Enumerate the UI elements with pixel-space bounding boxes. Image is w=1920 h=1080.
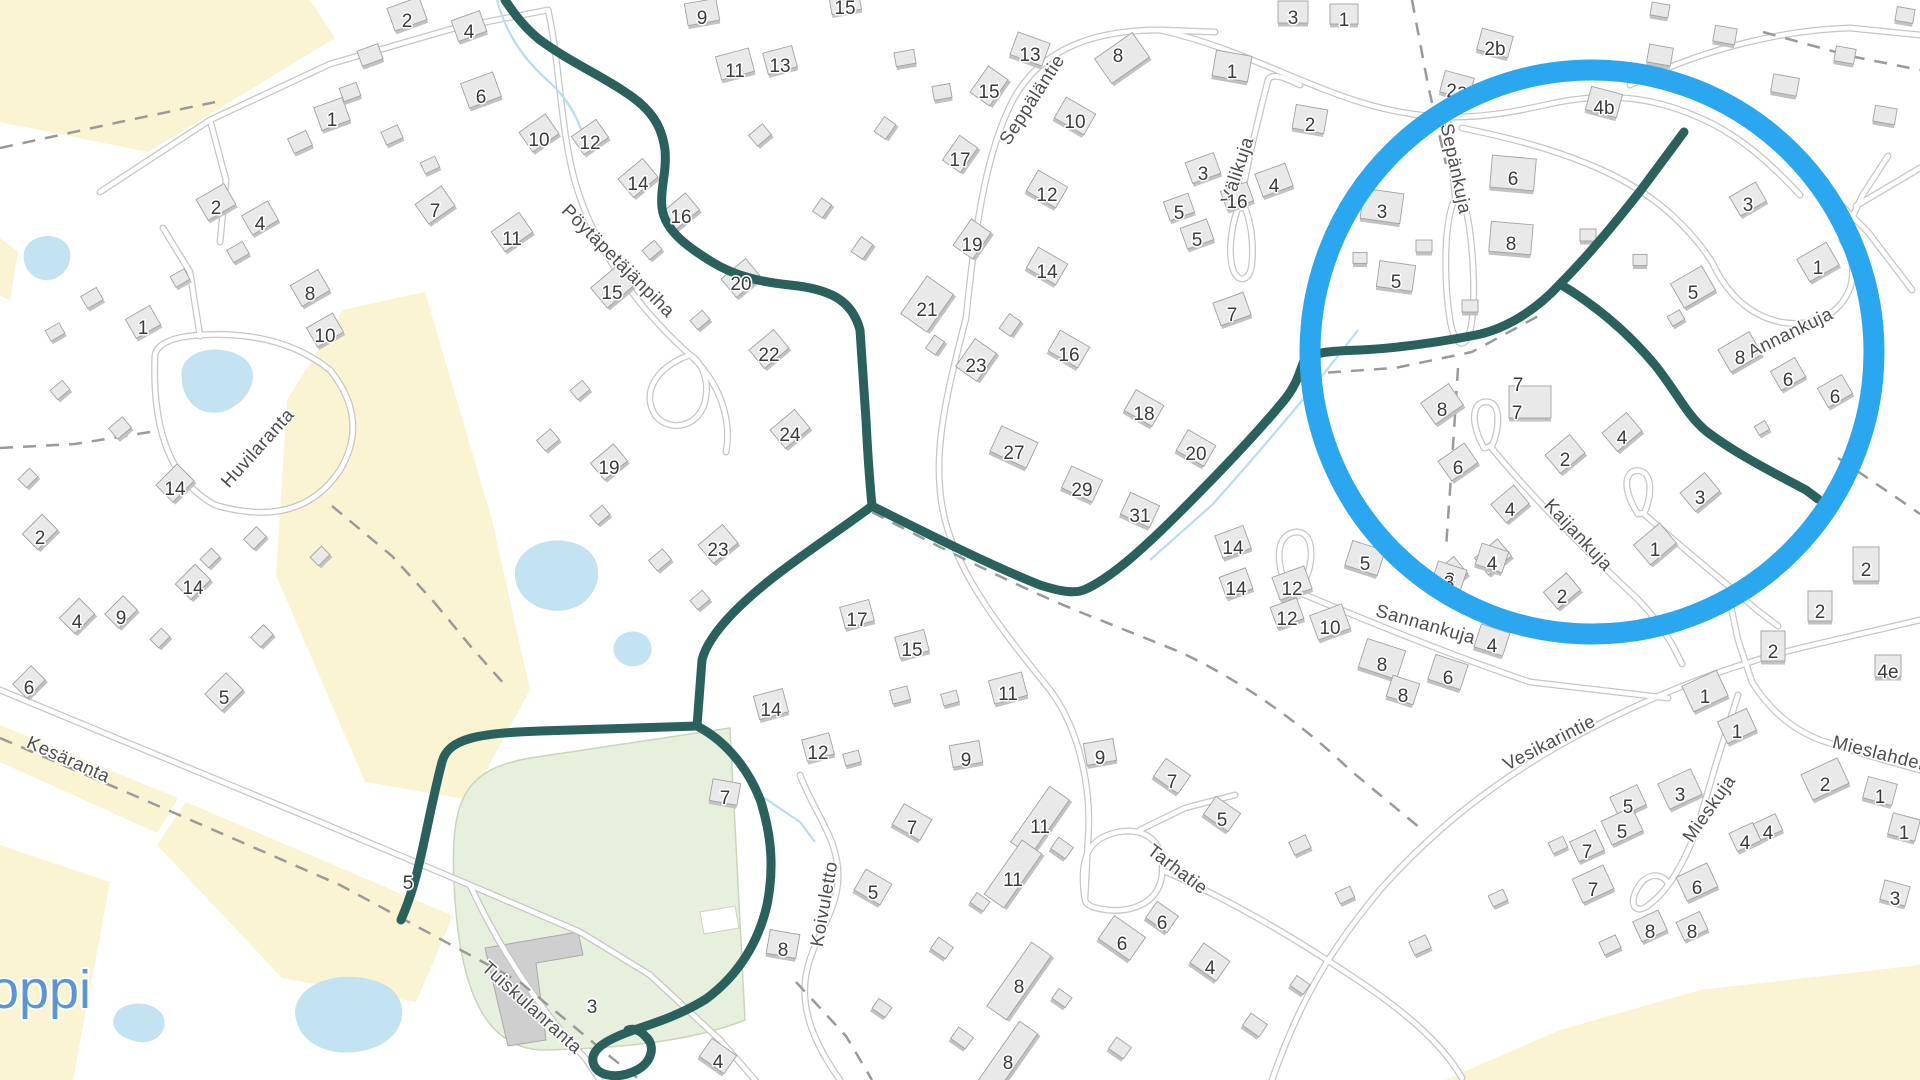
house-number: 14 bbox=[1222, 538, 1244, 559]
house-number: 2 bbox=[402, 11, 413, 32]
house-number: 5 bbox=[868, 883, 879, 904]
house-number: 9 bbox=[1095, 748, 1106, 769]
building-body bbox=[1771, 74, 1800, 96]
building-body bbox=[1462, 300, 1478, 312]
house-number: 6 bbox=[1443, 668, 1454, 689]
house-number: 17 bbox=[949, 150, 970, 171]
house-number: 9 bbox=[697, 8, 708, 29]
house-number: 9 bbox=[116, 608, 127, 629]
house-number: 3 bbox=[1890, 889, 1901, 910]
house-number: 1 bbox=[1227, 62, 1238, 83]
house-number: 16 bbox=[670, 207, 691, 228]
house-number: 4 bbox=[1269, 176, 1280, 197]
building-body bbox=[1873, 105, 1897, 125]
building-body bbox=[1353, 253, 1367, 264]
house-number: 4 bbox=[1617, 428, 1628, 449]
house-number: 15 bbox=[834, 0, 855, 19]
house-number: 6 bbox=[1692, 878, 1703, 899]
house-number: 3 bbox=[1695, 488, 1706, 509]
house-number: 19 bbox=[961, 235, 982, 256]
house-number: 1 bbox=[1339, 10, 1350, 31]
house-number: 14 bbox=[182, 578, 204, 599]
house-number: 2b bbox=[1484, 39, 1505, 60]
house-number: 8 bbox=[1003, 1053, 1014, 1074]
house-number: 1 bbox=[327, 110, 338, 131]
house-number: 4 bbox=[1505, 500, 1516, 521]
house-number: 3 bbox=[587, 997, 598, 1018]
house-number: 8 bbox=[1437, 400, 1448, 421]
house-number: 4 bbox=[72, 612, 83, 633]
house-number: 23 bbox=[707, 540, 728, 561]
building-body bbox=[1713, 25, 1737, 45]
house-number: 2 bbox=[1815, 602, 1826, 623]
house-number: 8 bbox=[1735, 348, 1746, 369]
house-number: 27 bbox=[1003, 443, 1024, 464]
house-number: 5 bbox=[1360, 554, 1371, 575]
house-number: 14 bbox=[1036, 262, 1058, 283]
house-number: 3 bbox=[1288, 8, 1299, 29]
house-number: 4b bbox=[1593, 98, 1614, 119]
house-number: 11 bbox=[998, 684, 1018, 705]
building-body bbox=[1895, 7, 1915, 24]
house-number: 5 bbox=[403, 873, 414, 894]
house-number: 10 bbox=[314, 326, 335, 347]
building-body bbox=[1650, 2, 1670, 18]
house-number: 1 bbox=[1899, 823, 1910, 844]
house-number: 11 bbox=[502, 229, 522, 250]
building bbox=[1872, 105, 1897, 128]
house-number: 2 bbox=[1305, 115, 1316, 136]
house-number: 4 bbox=[255, 214, 266, 235]
water-name-label: oppi bbox=[0, 960, 91, 1020]
house-number: 10 bbox=[528, 130, 549, 151]
house-number: 1 bbox=[1875, 787, 1886, 808]
house-number: 11 bbox=[1003, 870, 1023, 891]
house-number: 11 bbox=[1030, 817, 1050, 838]
house-number: 5 bbox=[1617, 822, 1628, 843]
house-number: 1 bbox=[1813, 258, 1824, 279]
house-number: 14 bbox=[760, 700, 782, 721]
house-number: 6 bbox=[476, 87, 487, 108]
pond bbox=[613, 632, 651, 667]
house-number: 7 bbox=[1512, 403, 1523, 424]
house-number: 8 bbox=[1377, 655, 1388, 676]
house-number: 20 bbox=[730, 274, 751, 295]
building bbox=[894, 49, 917, 70]
house-number: 12 bbox=[1276, 609, 1297, 630]
house-number: 3 bbox=[1198, 164, 1209, 185]
house-number: 4 bbox=[713, 1052, 724, 1073]
house-number: 2 bbox=[1861, 560, 1872, 581]
house-number: 5 bbox=[1623, 797, 1634, 818]
building bbox=[1712, 25, 1737, 48]
house-number: 3 bbox=[1377, 202, 1388, 223]
house-number: 5 bbox=[219, 688, 230, 709]
house-number: 17 bbox=[846, 610, 867, 631]
house-number: 3 bbox=[1675, 785, 1686, 806]
house-number: 2 bbox=[1560, 450, 1571, 471]
house-number: 5 bbox=[1174, 203, 1185, 224]
house-number: 13 bbox=[769, 56, 790, 77]
house-number: 4 bbox=[1487, 636, 1498, 657]
house-number: 8 bbox=[1506, 234, 1517, 255]
house-number: 23 bbox=[965, 356, 986, 377]
house-number: 6 bbox=[1157, 913, 1168, 934]
house-number: 7 bbox=[1582, 842, 1593, 863]
house-number: 7 bbox=[907, 818, 918, 839]
pond bbox=[295, 977, 402, 1053]
building-body bbox=[1834, 46, 1856, 64]
house-number: 8 bbox=[1645, 922, 1656, 943]
building-body bbox=[894, 49, 916, 66]
house-number: 12 bbox=[579, 133, 600, 154]
building bbox=[1894, 7, 1915, 27]
building bbox=[1416, 240, 1432, 256]
house-number: 9 bbox=[961, 750, 972, 771]
house-number: 3 bbox=[1743, 195, 1754, 216]
building-body bbox=[932, 84, 952, 101]
house-number: 2 bbox=[1557, 587, 1568, 608]
house-number: 4 bbox=[1487, 554, 1498, 575]
house-number: 6 bbox=[1117, 934, 1128, 955]
house-number: 6 bbox=[24, 678, 35, 699]
house-number: 8 bbox=[305, 284, 316, 305]
building-body bbox=[1647, 44, 1674, 66]
house-number: 19 bbox=[598, 458, 619, 479]
house-number: 1 bbox=[1650, 540, 1661, 561]
house-number: 8 bbox=[778, 940, 789, 961]
house-number: 6 bbox=[1508, 169, 1519, 190]
house-number: 15 bbox=[901, 640, 922, 661]
building bbox=[1462, 300, 1478, 316]
house-number: 1 bbox=[1700, 687, 1711, 708]
building bbox=[1649, 2, 1670, 21]
house-number: 8 bbox=[1398, 686, 1409, 707]
house-number: 10 bbox=[1064, 112, 1085, 133]
house-number: 24 bbox=[779, 425, 801, 446]
house-number: 4e bbox=[1877, 662, 1898, 683]
house-number: 2 bbox=[211, 198, 222, 219]
house-number: 14 bbox=[1225, 579, 1247, 600]
house-number: 20 bbox=[1185, 444, 1206, 465]
house-number: 29 bbox=[1071, 480, 1092, 501]
house-number: 10 bbox=[1319, 618, 1340, 639]
house-number: 5 bbox=[1217, 810, 1228, 831]
building-body bbox=[1633, 255, 1647, 266]
house-number: 21 bbox=[916, 300, 937, 321]
house-number: 11 bbox=[725, 61, 745, 82]
house-number: 4 bbox=[1740, 833, 1751, 854]
house-number: 1 bbox=[138, 318, 149, 339]
building bbox=[1633, 255, 1647, 270]
house-number: 13 bbox=[1019, 45, 1040, 66]
house-number: 16 bbox=[1058, 345, 1079, 366]
house-number: 7 bbox=[1227, 305, 1238, 326]
house-number: 5 bbox=[1192, 230, 1203, 251]
house-number: 31 bbox=[1129, 506, 1150, 527]
house-number: 7 bbox=[720, 788, 731, 809]
house-number: 22 bbox=[758, 345, 779, 366]
building bbox=[1770, 74, 1799, 100]
map-canvas[interactable]: PöytäpetäjänpihaHuvilarantaKesärantaSepp… bbox=[0, 0, 1920, 1080]
house-number: 12 bbox=[1036, 185, 1057, 206]
house-number: 8 bbox=[1687, 922, 1698, 943]
house-number: 6 bbox=[1830, 387, 1841, 408]
building-body bbox=[1580, 229, 1596, 241]
house-number: 18 bbox=[1133, 404, 1154, 425]
house-number: 16 bbox=[1226, 192, 1247, 213]
house-number: 5 bbox=[1688, 283, 1699, 304]
house-number: 12 bbox=[807, 743, 828, 764]
house-number: 2 bbox=[35, 528, 46, 549]
house-number: 4 bbox=[464, 22, 475, 43]
house-number: 7 bbox=[1167, 772, 1178, 793]
building bbox=[932, 84, 953, 104]
house-number: 15 bbox=[601, 283, 622, 304]
house-number: 4 bbox=[1205, 958, 1216, 979]
house-number: 6 bbox=[1453, 458, 1464, 479]
building bbox=[1353, 253, 1367, 268]
house-number: 8 bbox=[1113, 46, 1124, 67]
house-number: 7 bbox=[1513, 375, 1524, 396]
house-number: 8 bbox=[1014, 977, 1025, 998]
house-number: 15 bbox=[978, 82, 999, 103]
house-number: 4 bbox=[1763, 823, 1774, 844]
house-number: 7 bbox=[1588, 880, 1599, 901]
map-viewport[interactable]: PöytäpetäjänpihaHuvilarantaKesärantaSepp… bbox=[0, 0, 1920, 1080]
house-number: 14 bbox=[164, 479, 186, 500]
house-number: 6 bbox=[1783, 370, 1794, 391]
house-number: 2 bbox=[1820, 775, 1831, 796]
building-body bbox=[1416, 240, 1432, 252]
house-number: 14 bbox=[627, 174, 649, 195]
house-number: 5 bbox=[1391, 272, 1402, 293]
building bbox=[1833, 46, 1856, 68]
house-number: 12 bbox=[1281, 579, 1302, 600]
house-number: 7 bbox=[430, 201, 441, 222]
house-number: 2 bbox=[1768, 642, 1779, 663]
water-label-layer: oppi bbox=[0, 960, 91, 1020]
house-number: 1 bbox=[1732, 722, 1743, 743]
